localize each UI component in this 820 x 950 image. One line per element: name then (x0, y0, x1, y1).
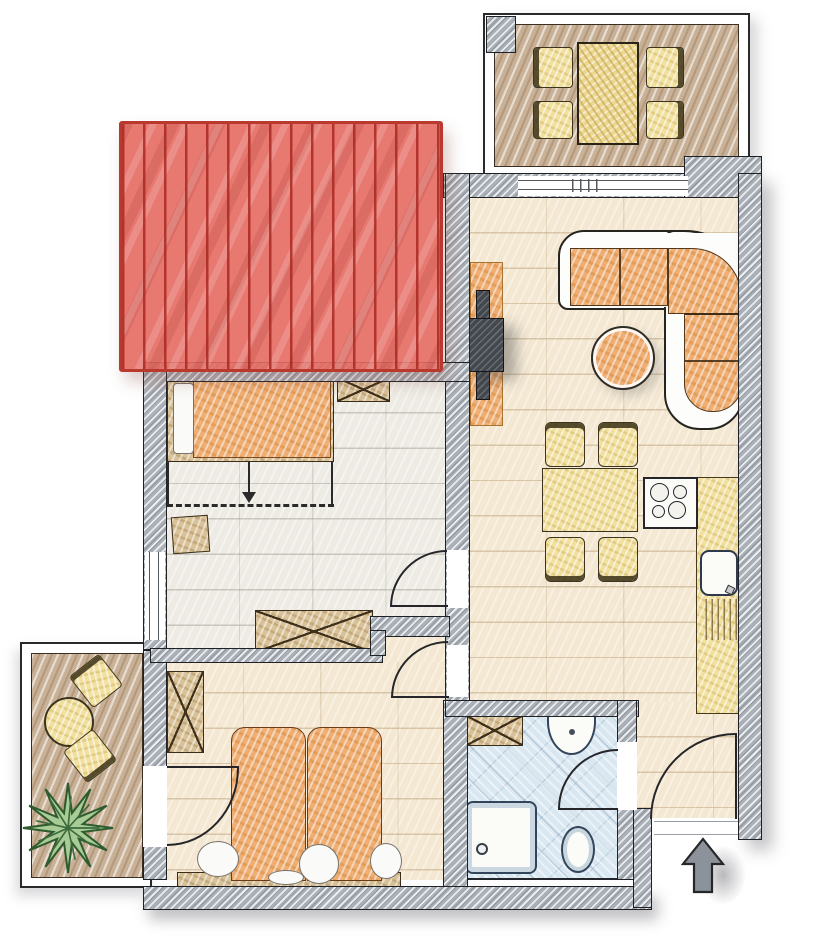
stove-burner (652, 505, 665, 518)
dining-chair (545, 537, 585, 582)
shower-tray (465, 801, 537, 874)
bed-pillow (370, 843, 402, 879)
bed-pillow (173, 383, 194, 454)
balcony-chair (646, 101, 684, 139)
dining-table (542, 468, 638, 532)
wall-step-connector (370, 630, 386, 656)
roof-overlay (119, 121, 443, 372)
entrance-arrow-icon (681, 837, 725, 894)
single-bed-mattress (193, 379, 331, 458)
tv-icon (466, 318, 504, 372)
coffee-table (591, 326, 655, 390)
bedroom2-door-leaf (391, 696, 449, 698)
stool (171, 515, 210, 554)
bedroom1-door-leaf (390, 605, 448, 607)
bedroom1-door-opening (447, 550, 468, 608)
terrace-door-leaf (167, 766, 239, 768)
wardrobe (167, 671, 204, 753)
bed-pillow (197, 841, 239, 877)
toilet (561, 826, 595, 873)
entrance-door-opening (654, 818, 738, 839)
balcony-table (577, 42, 639, 145)
wardrobe (255, 610, 373, 653)
stove-burner (650, 483, 669, 502)
slope-line (331, 461, 333, 506)
floor-plan (0, 0, 820, 950)
roof-slope-dashed-line (167, 504, 334, 507)
slope-arrow (248, 462, 250, 494)
wall-south (143, 886, 652, 910)
double-bed-mattress (231, 727, 306, 881)
terrace-door-opening (143, 766, 167, 847)
wall-bathroom-west (443, 700, 468, 908)
entrance-door-leaf (735, 733, 737, 819)
wall-bathroom-north (445, 700, 639, 717)
dining-chair (598, 537, 638, 582)
bathroom-door-opening (617, 742, 637, 810)
sofa-cushions (684, 314, 742, 412)
stove-burner (673, 485, 687, 499)
wall-entry-side (633, 808, 652, 908)
slope-arrowhead-icon (242, 492, 256, 503)
window-handle-icon (572, 179, 598, 192)
dining-chair (598, 422, 638, 467)
bathroom-door-leaf (558, 808, 618, 810)
bed-pillow (299, 844, 339, 884)
shower-drain-icon (476, 843, 488, 855)
plant-icon (22, 782, 114, 874)
sofa-cushion-seam (685, 360, 741, 362)
sofa-cushion-seam (685, 313, 741, 315)
bedroom2-door-opening (447, 645, 468, 697)
balcony-sliding-window (518, 176, 688, 196)
stove-burner (668, 501, 686, 519)
balcony-chair (533, 101, 573, 139)
dining-chair (545, 422, 585, 467)
sofa-cushion-seam (619, 249, 621, 305)
balcony-chair (533, 47, 573, 88)
bed-pillow (268, 870, 304, 885)
balcony-pillar (486, 16, 516, 53)
balcony-chair (646, 47, 684, 88)
bathroom-cabinet (466, 715, 523, 746)
basin-faucet-icon (569, 729, 575, 735)
wall-between-bedrooms (150, 648, 383, 663)
bedroom1-window (145, 552, 165, 640)
wall-east (738, 173, 762, 840)
slope-line (167, 461, 169, 506)
drainboard (701, 599, 739, 640)
